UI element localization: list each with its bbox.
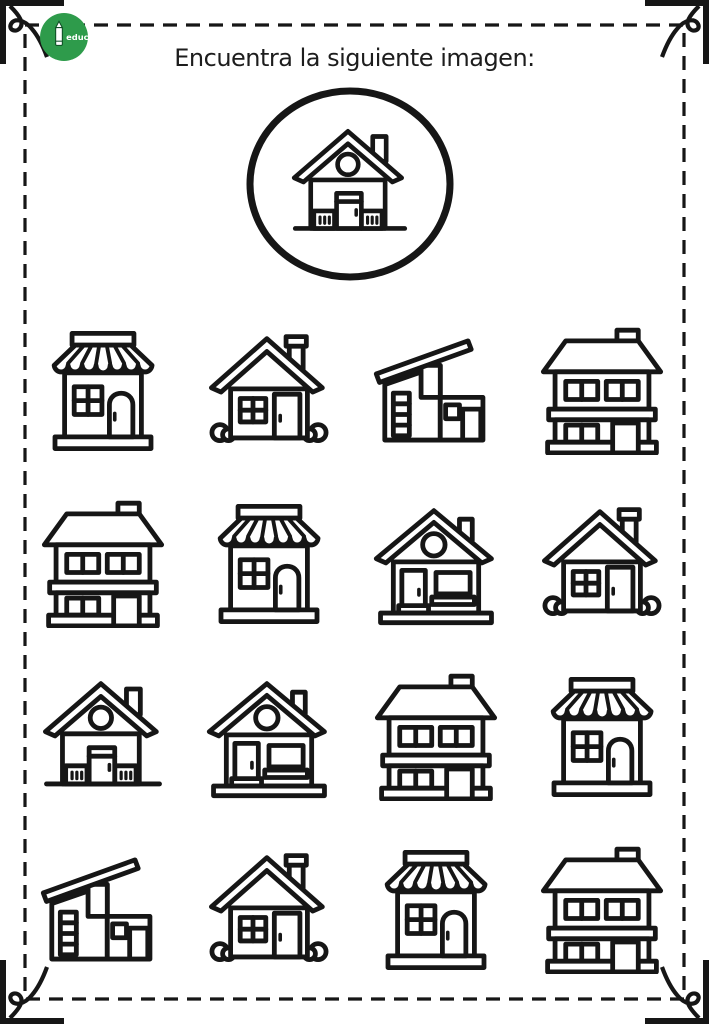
two-story-house-icon	[39, 500, 167, 628]
house-option-15-shop[interactable]	[353, 823, 519, 996]
house-option-10-porch-house[interactable]	[186, 650, 352, 823]
house-option-3-modern-house[interactable]	[353, 304, 519, 477]
house-options-grid	[20, 304, 685, 996]
page-title: Encuentra la siguiente imagen:	[0, 44, 709, 72]
two-story-house-icon	[538, 846, 666, 974]
house-option-13-modern-house[interactable]	[20, 823, 186, 996]
pencil-icon	[56, 21, 63, 45]
modern-house-icon	[39, 846, 167, 974]
shop-house-icon	[538, 673, 666, 801]
simple-house-icon	[538, 500, 666, 628]
two-story-house-icon	[538, 327, 666, 455]
house-option-8-simple-house[interactable]	[519, 477, 685, 650]
house-option-2-simple-house[interactable]	[186, 304, 352, 477]
simple-house-icon	[205, 327, 333, 455]
simple-house-icon	[205, 846, 333, 974]
house-option-1-shop[interactable]	[20, 304, 186, 477]
target-image-area	[243, 85, 457, 285]
house-option-6-shop[interactable]	[186, 477, 352, 650]
round-window-house-icon	[205, 673, 333, 801]
round-window-house-icon	[372, 500, 500, 628]
house-option-16-two-story-house[interactable]	[519, 823, 685, 996]
logo-text: educar	[66, 32, 89, 42]
house-option-4-two-story-house[interactable]	[519, 304, 685, 477]
house-option-9-target-match[interactable]	[20, 650, 186, 823]
target-house-icon	[294, 131, 405, 228]
house-option-7-porch-house[interactable]	[353, 477, 519, 650]
target-house-icon	[39, 673, 167, 801]
house-option-14-simple-house[interactable]	[186, 823, 352, 996]
shop-house-icon	[372, 846, 500, 974]
modern-house-icon	[372, 327, 500, 455]
shop-house-icon	[205, 500, 333, 628]
house-option-11-two-story-house[interactable]	[353, 650, 519, 823]
two-story-house-icon	[372, 673, 500, 801]
shop-house-icon	[39, 327, 167, 455]
house-option-5-two-story-house[interactable]	[20, 477, 186, 650]
house-option-12-shop[interactable]	[519, 650, 685, 823]
